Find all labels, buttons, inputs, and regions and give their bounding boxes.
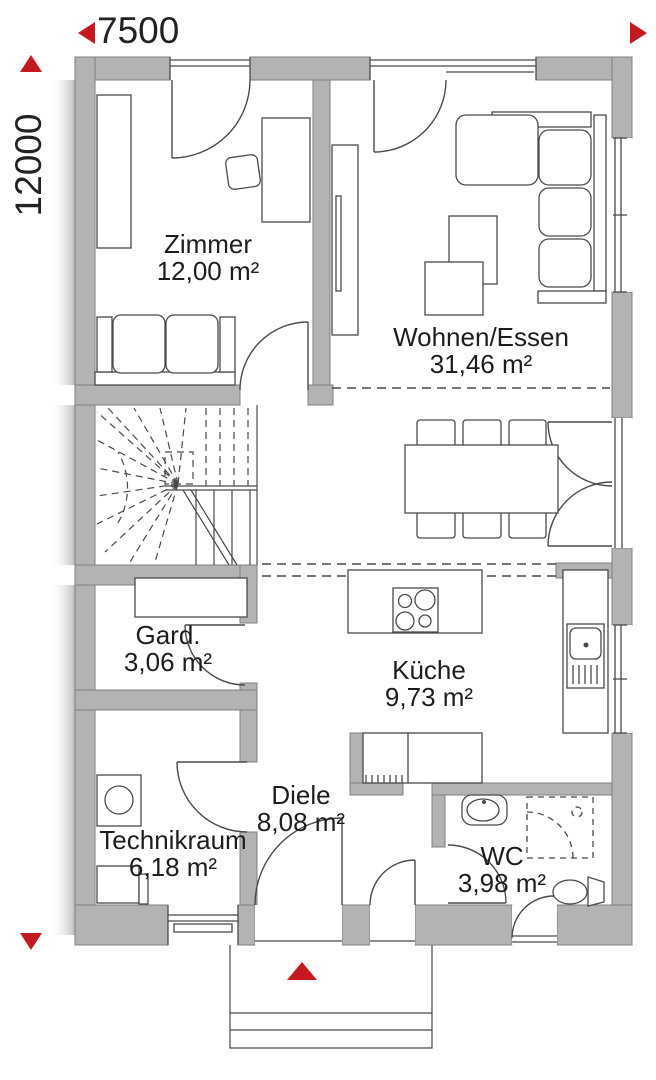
room-area: 31,46 m² xyxy=(393,351,569,378)
wardrobe-icon xyxy=(97,95,131,248)
dimension-width-label: 7500 xyxy=(97,10,179,52)
right-arrow-icon xyxy=(630,22,647,44)
room-name: WC xyxy=(458,843,546,870)
room-label-wc: WC 3,98 m² xyxy=(458,843,546,897)
room-area: 6,18 m² xyxy=(99,854,246,881)
room-area: 3,98 m² xyxy=(458,870,546,897)
chair-icon xyxy=(225,154,261,190)
room-area: 3,06 m² xyxy=(124,649,212,676)
wall-shadow xyxy=(50,80,75,935)
room-name: Gard. xyxy=(124,622,212,649)
door-swing-icon xyxy=(374,80,446,152)
floor-plan-drawing xyxy=(0,0,656,1080)
room-label-technikraum: Technikraum 6,18 m² xyxy=(99,827,246,881)
dining-chair-icon xyxy=(509,420,546,447)
room-name: Zimmer xyxy=(157,231,260,258)
washing-machine-icon xyxy=(97,775,141,826)
dining-chair-icon xyxy=(463,420,501,447)
dining-table-icon xyxy=(405,445,558,513)
room-name: Diele xyxy=(257,782,345,809)
toilet-icon xyxy=(553,877,604,906)
room-area: 12,00 m² xyxy=(157,258,260,285)
dining-chair-icon xyxy=(509,511,546,538)
room-name: Wohnen/Essen xyxy=(393,324,569,351)
room-label-diele: Diele 8,08 m² xyxy=(257,782,345,836)
door-threshold xyxy=(512,905,557,945)
door-swing-icon xyxy=(172,80,250,158)
room-label-wohnen-essen: Wohnen/Essen 31,46 m² xyxy=(393,324,569,378)
washbasin-icon xyxy=(462,795,507,825)
room-label-garderobe: Gard. 3,06 m² xyxy=(124,622,212,676)
desk-icon xyxy=(262,118,310,222)
dining-chair-icon xyxy=(417,420,455,447)
wardrobe-icon xyxy=(135,578,247,617)
up-arrow-icon xyxy=(20,55,42,72)
dimension-height-label: 12000 xyxy=(8,94,46,236)
dining-chair-icon xyxy=(463,511,501,538)
window-icon xyxy=(370,57,536,80)
door-swing-icon xyxy=(370,860,415,905)
porch-steps-icon xyxy=(230,945,432,1048)
floor-plan: 7500 12000 Zimmer 12,00 m² Wohnen/Essen … xyxy=(0,0,656,1080)
dining-chair-icon xyxy=(417,511,455,538)
down-arrow-icon xyxy=(20,933,42,950)
door-swing-icon xyxy=(240,322,308,390)
door-threshold xyxy=(255,905,415,945)
coffee-table-icon xyxy=(425,262,483,315)
kitchen-sink-icon xyxy=(567,624,604,688)
french-door-frame xyxy=(612,418,632,548)
room-area: 8,08 m² xyxy=(257,809,345,836)
door-swing-icon xyxy=(177,762,247,832)
window-icon xyxy=(612,138,632,292)
winder-staircase-icon xyxy=(97,405,257,565)
left-arrow-icon xyxy=(78,22,95,44)
cooktop-icon xyxy=(393,588,438,632)
entrance-arrow-icon xyxy=(287,962,317,980)
room-area: 9,73 m² xyxy=(385,684,473,711)
room-label-zimmer: Zimmer 12,00 m² xyxy=(157,231,260,285)
bed-sofa-icon xyxy=(95,315,235,385)
room-name: Küche xyxy=(385,657,473,684)
dining-table-group xyxy=(405,420,558,538)
window-icon xyxy=(168,905,238,945)
room-label-kueche: Küche 9,73 m² xyxy=(385,657,473,711)
window-icon xyxy=(170,57,250,80)
room-name: Technikraum xyxy=(99,827,246,854)
window-icon xyxy=(612,625,632,733)
sideboard-icon xyxy=(332,145,358,335)
